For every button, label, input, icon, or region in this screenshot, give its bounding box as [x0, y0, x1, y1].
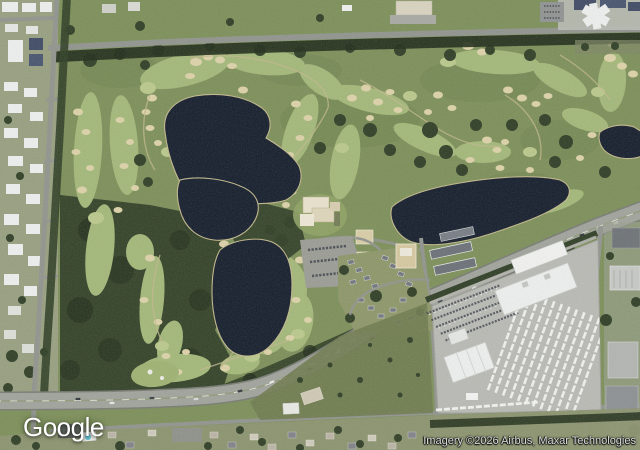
attribution-text: Imagery ©2026 Airbus, Maxar Technologies	[423, 435, 636, 447]
imagery-grain	[0, 0, 640, 450]
map-canvas[interactable]	[0, 0, 640, 450]
map-viewport[interactable]: Google Imagery ©2026 Airbus, Maxar Techn…	[0, 0, 640, 450]
google-logo[interactable]: Google	[23, 412, 104, 443]
